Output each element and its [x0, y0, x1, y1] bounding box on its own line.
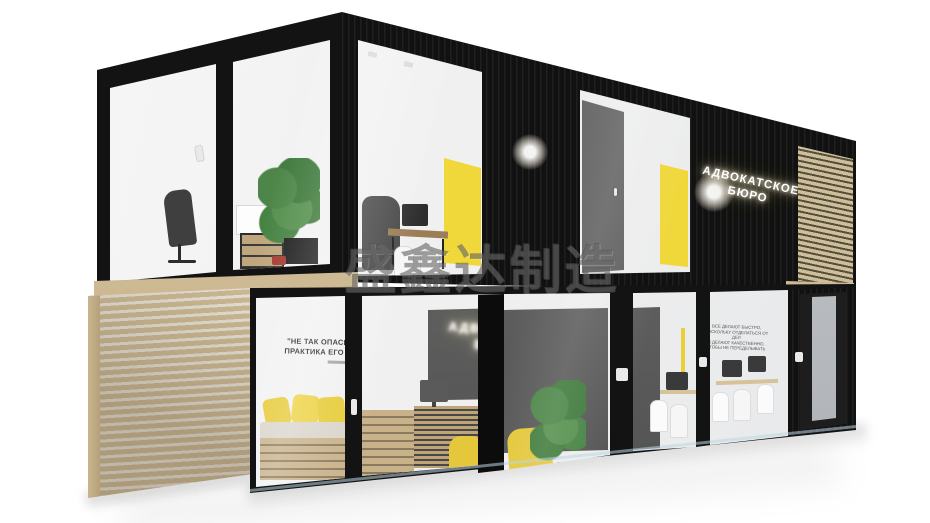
office-monitor: [748, 356, 766, 372]
white-chair: [670, 404, 688, 438]
white-chair: [650, 400, 668, 432]
white-chair: [733, 389, 751, 421]
sofa-pallet-base: [260, 438, 346, 480]
wall-lamp: [528, 146, 533, 158]
white-chair: [712, 392, 729, 422]
louver-left-post: [88, 294, 100, 500]
yellow-door-edge: [681, 328, 685, 376]
glass-motto: ВСЕ ДЕЛАЮТ БЫСТРО, ПОСКОЛЬКУ ОТДЕЛАТЬСЯ …: [701, 324, 771, 353]
monitor: [402, 204, 428, 226]
reception-monitor-stand: [432, 402, 436, 407]
sliding-door-handle-2: [616, 368, 628, 381]
plant-stand: [284, 238, 318, 264]
watermark: 盛鑫达制造: [344, 228, 619, 303]
red-accent-object: [272, 256, 286, 265]
office-monitor: [722, 360, 742, 377]
white-chair: [757, 384, 774, 414]
sliding-door-handle-3: [699, 357, 707, 367]
sliding-door-handle-1: [351, 399, 357, 415]
reception-monitor: [420, 380, 448, 402]
gray-door-handle: [614, 188, 617, 196]
indoor-plant: [530, 380, 586, 466]
office-chair-base: [168, 260, 196, 263]
office-monitor: [666, 372, 688, 390]
office-desk: [660, 390, 702, 394]
entry-door-handle: [795, 352, 803, 362]
container-building-render: АДВОКАТСКОЕ БЮРО "НЕ ТАК ОПАСЕН ЗАКОН, К…: [0, 0, 930, 523]
sofa-cushion-yellow: [291, 394, 321, 426]
potted-plant-large: [258, 158, 320, 244]
sofa-pallet-arm: [362, 410, 414, 476]
